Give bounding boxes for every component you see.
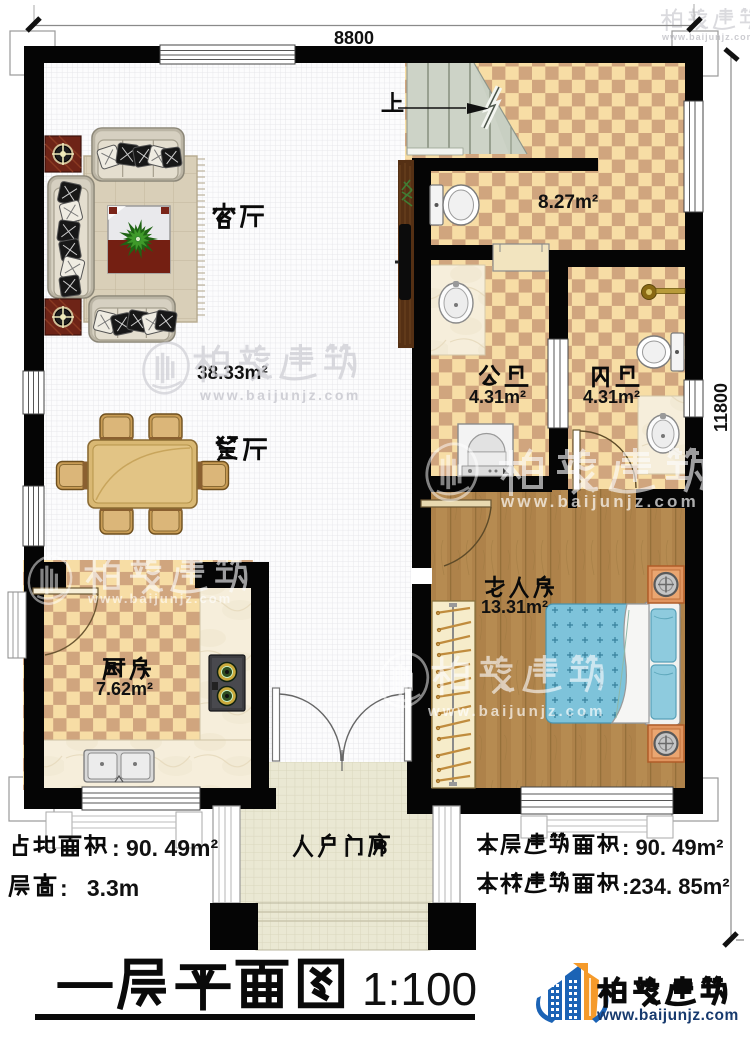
svg-text:8.27m²: 8.27m² — [538, 192, 598, 213]
svg-text:www.baijunjz.com: www.baijunjz.com — [199, 387, 361, 403]
svg-text:4.31m²: 4.31m² — [583, 387, 640, 407]
svg-text:8800: 8800 — [334, 28, 374, 48]
svg-text:13.31m²: 13.31m² — [481, 597, 548, 617]
svg-text:www.baijunjz.com: www.baijunjz.com — [87, 591, 232, 606]
svg-text:4.31m²: 4.31m² — [469, 387, 526, 407]
svg-text:11800: 11800 — [711, 383, 731, 432]
svg-text:7.62m²: 7.62m² — [96, 679, 153, 699]
svg-text:: 90. 49m²: : 90. 49m² — [622, 835, 724, 860]
svg-text:1:100: 1:100 — [362, 963, 477, 1015]
svg-text:: 90. 49m²: : 90. 49m² — [112, 835, 218, 861]
svg-text:www.baijunjz.com: www.baijunjz.com — [661, 32, 750, 42]
svg-text:www.baijunjz.com: www.baijunjz.com — [427, 703, 605, 720]
svg-text:: 3.3m: : 3.3m — [60, 875, 139, 901]
svg-text::234. 85m²: :234. 85m² — [622, 874, 730, 899]
svg-text:www.baijunjz.com: www.baijunjz.com — [596, 1007, 739, 1024]
svg-text:www.baijunjz.com: www.baijunjz.com — [500, 492, 699, 511]
